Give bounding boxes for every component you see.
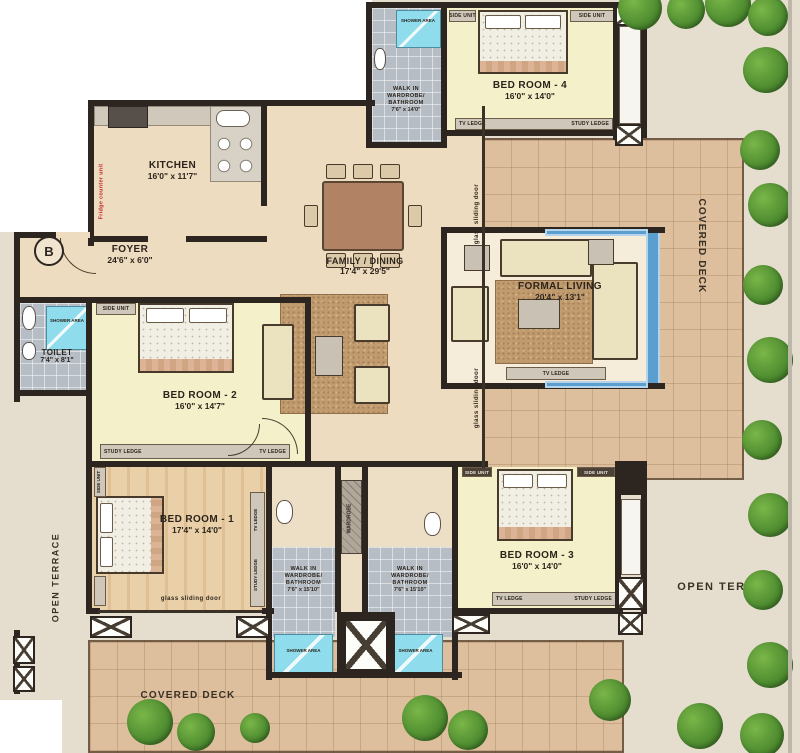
bed-pillow bbox=[503, 474, 533, 488]
formal-living-label: FORMAL LIVING 20'4" x 13'1" bbox=[495, 281, 625, 302]
wall-segment bbox=[366, 2, 647, 8]
bed-icon-bedroom2 bbox=[138, 303, 234, 373]
family-armchair-icon bbox=[354, 366, 390, 404]
bush-icon bbox=[743, 47, 789, 93]
walkin1-label: WALK IN WARDROBE/ BATHROOM 7'6" x 15'10" bbox=[273, 566, 334, 593]
room-name: FOYER bbox=[70, 244, 190, 255]
room-dims: 16'0" x 14'0" bbox=[462, 561, 612, 571]
walkin4-shower-area bbox=[396, 10, 441, 48]
bedroom1-side-unit bbox=[94, 576, 106, 606]
bedroom4-side-unit: SIDE UNIT bbox=[449, 10, 476, 22]
door-opening bbox=[148, 236, 186, 242]
floor-plan: COVERED DECK COVERED DECK OPEN TERRACE O… bbox=[0, 0, 800, 753]
walkin3-label: WALK IN WARDROBE/ BATHROOM 7'6" x 15'10" bbox=[370, 566, 450, 593]
room-name: FAMILY / DINING bbox=[290, 256, 440, 266]
bed-pillow bbox=[485, 15, 521, 29]
duct-vent bbox=[452, 614, 490, 634]
wall-segment bbox=[366, 142, 447, 148]
bush-icon bbox=[747, 642, 793, 688]
bedroom2-label: BED ROOM - 2 16'0" x 14'7" bbox=[120, 390, 280, 411]
bed-pillow bbox=[537, 474, 567, 488]
formal-sofa-icon bbox=[500, 239, 592, 277]
dining-table-icon bbox=[322, 181, 404, 251]
study-ledge-label: STUDY LEDGE bbox=[574, 596, 612, 602]
wall-segment bbox=[14, 232, 20, 402]
tv-ledge-label: TV LEDGE bbox=[543, 371, 570, 377]
bed-foot bbox=[480, 61, 566, 72]
service-shaft bbox=[619, 26, 641, 124]
section-marker-b: B bbox=[34, 236, 64, 266]
wc-icon bbox=[374, 48, 386, 70]
wall-segment bbox=[88, 100, 94, 246]
bush-icon bbox=[740, 130, 780, 170]
formal-side-table bbox=[588, 239, 614, 265]
dining-chair-icon bbox=[380, 164, 400, 179]
formal-sofa-icon bbox=[592, 262, 638, 360]
duct-vent bbox=[618, 612, 643, 635]
wall-segment bbox=[86, 461, 92, 614]
toilet-shower-area bbox=[46, 306, 88, 350]
room-dims: 20'4" x 13'1" bbox=[495, 292, 625, 302]
study-ledge-label: STUDY LEDGE bbox=[253, 530, 261, 620]
bed-pillow bbox=[146, 308, 184, 323]
walkin3-shower-area bbox=[388, 634, 443, 674]
dining-chair-icon bbox=[304, 205, 318, 227]
side-unit-label: SIDE UNIT bbox=[449, 13, 476, 19]
room-name: WALK IN WARDROBE/ BATHROOM bbox=[370, 566, 450, 587]
glass-sliding-door-label: glass sliding door bbox=[474, 323, 486, 473]
side-unit-label: SIDE UNIT bbox=[103, 306, 130, 312]
bush-icon bbox=[177, 713, 215, 751]
wall-segment bbox=[441, 227, 447, 389]
formal-coffee-table bbox=[518, 299, 560, 329]
lift-shaft bbox=[343, 618, 389, 672]
bush-icon bbox=[748, 493, 792, 537]
duct-vent bbox=[236, 616, 270, 638]
wall-segment bbox=[266, 461, 272, 680]
room-dims: 17'4" x 14'0" bbox=[122, 525, 272, 535]
family-armchair-icon bbox=[354, 304, 390, 342]
bush-icon bbox=[740, 713, 784, 753]
wall-segment bbox=[452, 461, 458, 680]
room-dims: 16'0" x 14'7" bbox=[120, 401, 280, 411]
family-coffee-table bbox=[315, 336, 343, 376]
door-opening bbox=[261, 206, 267, 236]
bush-icon bbox=[747, 337, 793, 383]
bedroom3-label: BED ROOM - 3 16'0" x 14'0" bbox=[462, 550, 612, 571]
wall-segment bbox=[14, 297, 311, 303]
room-name: FORMAL LIVING bbox=[495, 281, 625, 292]
room-walkin3-upper bbox=[368, 467, 452, 547]
shower-area-label: SHOWER AREA bbox=[398, 18, 438, 23]
foyer-label: FOYER 24'6" x 6'0" bbox=[70, 244, 190, 265]
window-band-right bbox=[646, 231, 660, 385]
room-dims: 7'6" x 15'10" bbox=[273, 587, 334, 593]
room-name: WALK IN WARDROBE/ BATHROOM bbox=[273, 566, 334, 587]
shower-area-label: SHOWER AREA bbox=[388, 648, 443, 653]
wc-icon bbox=[424, 512, 441, 536]
bedroom4-label: BED ROOM - 4 16'0" x 14'0" bbox=[455, 80, 605, 101]
bed-foot bbox=[151, 498, 162, 572]
window-band-bottom bbox=[545, 381, 648, 388]
glass-sliding-door-label: glass sliding door bbox=[136, 596, 246, 602]
wall-segment bbox=[362, 461, 368, 612]
side-unit-label: SIDE UNIT bbox=[584, 470, 608, 475]
bed-pillow bbox=[100, 537, 113, 567]
family-sofa-icon bbox=[262, 324, 294, 400]
duct-vent bbox=[90, 616, 132, 638]
fridge-label: Fridge counter unit bbox=[99, 144, 108, 240]
kitchen-sink-icon bbox=[216, 110, 250, 127]
bed-icon-bedroom3 bbox=[497, 469, 573, 541]
shower-area-label: SHOWER AREA bbox=[48, 318, 86, 323]
side-unit-label: SIDE UNIT bbox=[579, 13, 606, 19]
kitchen-label: KITCHEN 16'0" x 11'7" bbox=[110, 160, 235, 181]
bed-pillow bbox=[189, 308, 227, 323]
bed-icon-bedroom1 bbox=[96, 496, 164, 574]
bush-icon bbox=[589, 679, 631, 721]
bedroom3-ledge: TV LEDGESTUDY LEDGE bbox=[492, 592, 616, 606]
room-dims: 17'4" x 29'5" bbox=[290, 266, 440, 276]
wall-segment bbox=[305, 297, 311, 467]
bush-icon bbox=[743, 570, 783, 610]
bedroom2-side-unit: SIDE UNIT bbox=[96, 303, 136, 315]
wardrobe-label: WARDROBE bbox=[347, 474, 356, 564]
bush-icon bbox=[748, 183, 792, 227]
room-dims: 16'0" x 11'7" bbox=[110, 171, 235, 181]
bed-icon-bedroom4 bbox=[478, 10, 568, 74]
wc-icon bbox=[22, 306, 36, 330]
bed-foot bbox=[499, 527, 571, 539]
bush-icon bbox=[448, 710, 488, 750]
bed-foot bbox=[140, 359, 232, 371]
window-band-top bbox=[545, 229, 648, 236]
glass-sliding-door-label: glass sliding door bbox=[474, 139, 486, 289]
room-name: WALK IN WARDROBE/ BATHROOM bbox=[373, 86, 439, 107]
bush-icon bbox=[127, 699, 173, 745]
duct-vent bbox=[617, 577, 645, 610]
terrace-railing bbox=[788, 0, 792, 753]
bush-icon bbox=[743, 265, 783, 305]
room-name: TOILET bbox=[26, 348, 88, 357]
bedroom1-label: BED ROOM - 1 17'4" x 14'0" bbox=[122, 514, 272, 535]
room-name: KITCHEN bbox=[110, 160, 235, 171]
open-terrace-left-label: OPEN TERRACE bbox=[51, 478, 64, 678]
walkin4-label: WALK IN WARDROBE/ BATHROOM 7'6" x 14'0" bbox=[373, 86, 439, 113]
dining-chair-icon bbox=[353, 164, 373, 179]
room-dims: 7'6" x 14'0" bbox=[373, 107, 439, 113]
background-mask bbox=[0, 106, 88, 232]
background-mask bbox=[0, 0, 372, 106]
bush-icon bbox=[677, 703, 723, 749]
wc-icon bbox=[276, 500, 293, 524]
wall-segment bbox=[366, 2, 372, 148]
service-shaft bbox=[621, 499, 641, 575]
bush-icon bbox=[402, 695, 448, 741]
walkin1-shower-area bbox=[274, 634, 333, 674]
room-name: BED ROOM - 2 bbox=[120, 390, 280, 401]
bush-icon bbox=[742, 420, 782, 460]
wall-segment bbox=[335, 461, 341, 612]
duct-vent bbox=[615, 124, 643, 146]
kitchen-hob-icon bbox=[108, 106, 148, 128]
family-dining-label: FAMILY / DINING 17'4" x 29'5" bbox=[290, 256, 440, 276]
toilet-label: TOILET 7'4" x 8'1" bbox=[26, 348, 88, 364]
bedroom4-ledge: TV LEDGESTUDY LEDGE bbox=[455, 118, 613, 130]
room-dims: 16'0" x 14'0" bbox=[455, 91, 605, 101]
duct-vent bbox=[13, 666, 35, 692]
shower-area-label: SHOWER AREA bbox=[276, 648, 331, 653]
duct-vent bbox=[13, 636, 35, 664]
wall-segment bbox=[441, 2, 447, 148]
covered-deck-right-label: COVERED DECK bbox=[693, 146, 707, 346]
room-name: BED ROOM - 4 bbox=[455, 80, 605, 91]
wall-segment bbox=[88, 100, 375, 106]
bedroom3-side-unit: SIDE UNIT bbox=[577, 467, 615, 477]
dining-chair-icon bbox=[408, 205, 422, 227]
bush-icon bbox=[240, 713, 270, 743]
room-dims: 7'4" x 8'1" bbox=[26, 357, 88, 364]
study-ledge-label: STUDY LEDGE bbox=[571, 121, 609, 127]
formal-tv-ledge: TV LEDGE bbox=[506, 367, 606, 380]
wall-segment bbox=[14, 390, 92, 396]
room-name: BED ROOM - 3 bbox=[462, 550, 612, 561]
room-name: BED ROOM - 1 bbox=[122, 514, 272, 525]
bedroom4-side-unit: SIDE UNIT bbox=[570, 10, 614, 22]
wall-segment bbox=[86, 297, 92, 467]
dining-chair-icon bbox=[326, 164, 346, 179]
wall-segment bbox=[86, 461, 488, 467]
room-dims: 7'6" x 15'10" bbox=[370, 587, 450, 593]
tv-ledge-label: TV LEDGE bbox=[496, 596, 523, 602]
glass-sliding-door-line bbox=[98, 610, 268, 613]
room-dims: 24'6" x 6'0" bbox=[70, 255, 190, 265]
study-ledge-label: STUDY LEDGE bbox=[104, 449, 142, 455]
wall-pillar bbox=[615, 461, 647, 495]
bed-pillow bbox=[525, 15, 561, 29]
background-mask bbox=[0, 700, 62, 753]
